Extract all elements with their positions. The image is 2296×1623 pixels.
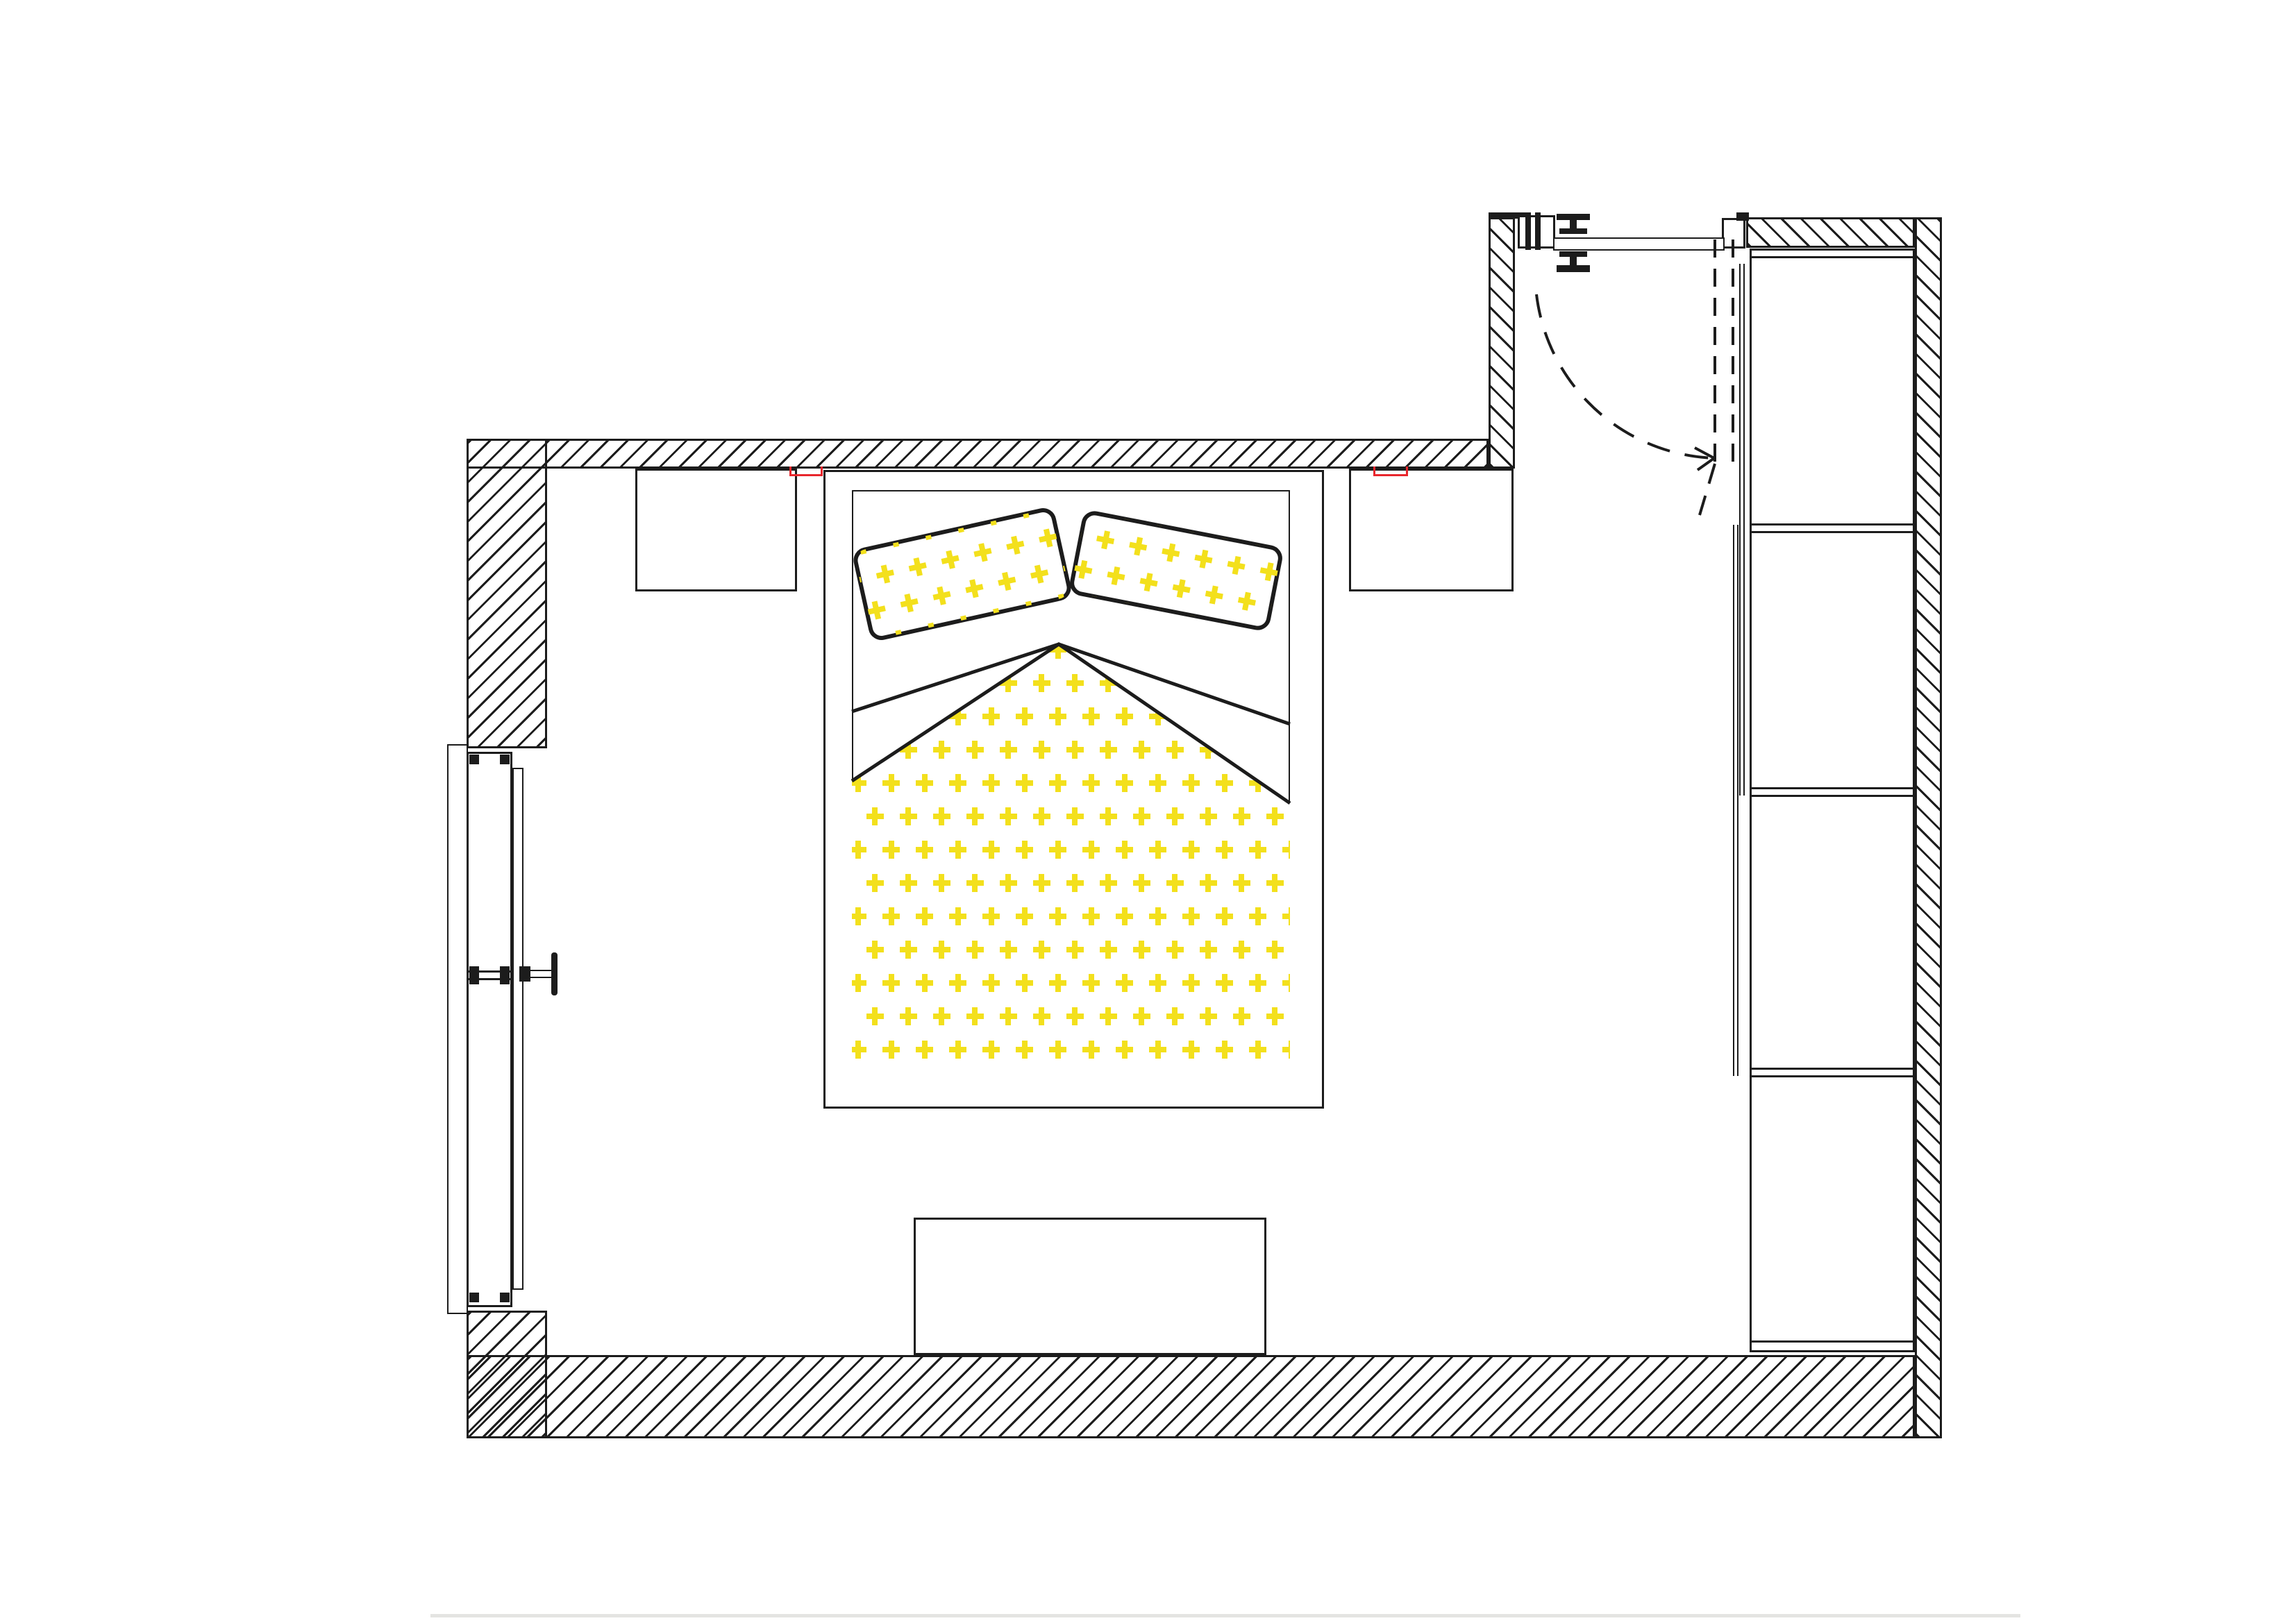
wardrobe-shelf-1 [1752,523,1913,533]
door-frame-strike-side [1722,218,1745,249]
top-wall [467,439,1489,469]
nightstand-right [1349,469,1514,591]
left-wall-upper [467,439,547,748]
door-hinge-symbol-lower [1557,251,1590,272]
wardrobe-top-panel [1752,249,1913,258]
dresser-bench [914,1218,1266,1355]
wardrobe-shelf-2 [1752,787,1913,797]
door-swing-arc [1536,294,1715,515]
window-hardware-top-left [469,755,479,764]
window-hardware-mid-right [500,966,510,984]
window-glazing [512,768,523,1290]
window-hardware-bottom-right [500,1293,510,1302]
wardrobe [1750,249,1915,1352]
window-hardware-mid-left [469,966,479,984]
wardrobe-shelf-3 [1752,1068,1913,1077]
window-hardware-top-right [500,755,510,764]
window-hardware-bottom-left [469,1293,479,1302]
door-frame-bar-1 [1525,212,1531,250]
window-handle-stem [529,970,554,978]
nightstand-left [635,469,797,591]
right-wall [1915,217,1942,1438]
door-frame-bar-2 [1535,212,1541,250]
door-leaf-closed [1553,237,1725,251]
scan-artifact-line [430,1614,2020,1617]
wardrobe-sliding-door-front-2 [1733,525,1738,1076]
bottom-wall [467,1355,1915,1438]
floor-plan-canvas [0,0,2296,1623]
window-handle-crossbar [551,952,558,995]
window-sill-board [447,744,468,1314]
window-frame [467,752,512,1307]
wardrobe-sliding-door-front-1 [1739,264,1745,796]
bed-mattress [852,490,1290,1070]
wardrobe-bottom-panel [1752,1340,1913,1350]
entry-partition-wall [1489,217,1515,469]
entry-top-wall [1746,217,1915,248]
red-mark-right [1373,466,1408,476]
door-strike-block [1736,212,1749,221]
door-open-leaf-dashed [1715,239,1733,466]
red-mark-left [789,466,823,476]
door-hinge-symbol-upper [1557,214,1590,234]
